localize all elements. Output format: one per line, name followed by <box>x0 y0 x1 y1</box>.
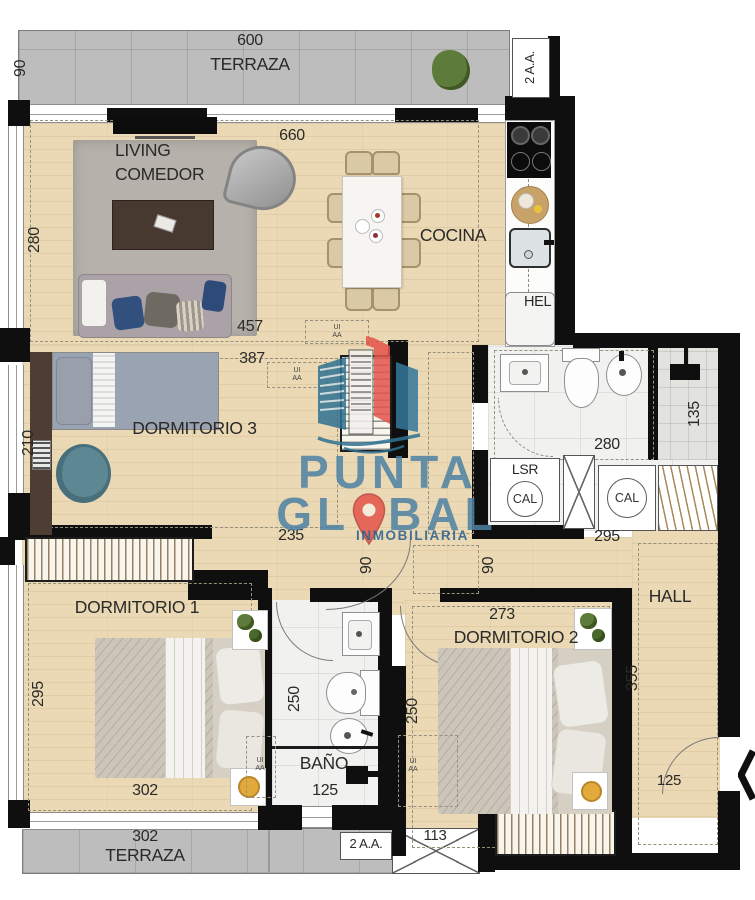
louver-closet <box>658 465 718 531</box>
suite-shower-depth: 135 <box>686 390 704 438</box>
duct-aa: AA <box>292 375 301 382</box>
corridor-dashed-box <box>413 545 479 594</box>
buildings-logo-icon <box>316 336 422 456</box>
dorm3-width: 387 <box>228 350 276 368</box>
duct-ui: UI <box>257 757 264 764</box>
hall-door-width: 125 <box>646 772 692 789</box>
burner-icon <box>532 152 551 171</box>
wall <box>8 800 30 828</box>
bano-width: 125 <box>278 782 372 800</box>
dining-chair <box>372 151 400 175</box>
heater-label: CAL <box>513 492 537 506</box>
sofa <box>78 274 232 338</box>
tv-stand <box>135 136 195 139</box>
dining-table <box>342 176 402 288</box>
remote-icon <box>153 214 176 233</box>
dorm3-chair <box>56 444 111 503</box>
shower-divider <box>272 746 378 749</box>
living-left-window <box>8 125 24 328</box>
plate-icon <box>355 219 370 234</box>
hall-label: HALL <box>640 586 700 607</box>
hall-top-width: 295 <box>580 528 634 546</box>
suite-bidet <box>606 354 642 396</box>
dorm1-label: DORMITORIO 1 <box>62 597 212 618</box>
terrace-bottom <box>22 828 394 874</box>
dorm2-wardrobe <box>495 810 616 856</box>
hall-depth: 355 <box>624 652 642 704</box>
plate-icon <box>369 229 383 243</box>
sheet-fold <box>93 353 115 427</box>
void-width: 113 <box>402 827 468 844</box>
pillow <box>214 644 266 706</box>
bidet-spout-icon <box>619 351 624 361</box>
lemon-icon <box>534 205 542 213</box>
suite-bath-width: 280 <box>580 436 634 454</box>
wall <box>378 600 392 815</box>
bed-duvet <box>510 648 552 814</box>
bidet-drain-icon <box>344 732 351 739</box>
heater-closet: CAL <box>598 465 656 531</box>
ac-unit-top: 2 A.A. <box>512 38 550 98</box>
wall <box>258 805 302 830</box>
bano-depth: 250 <box>286 672 304 726</box>
terrace-bottom-divider <box>268 828 270 872</box>
wall <box>8 100 30 126</box>
bidet-drain-icon <box>619 369 626 376</box>
wall <box>718 533 740 737</box>
burner-icon <box>531 126 550 145</box>
terrace-bottom-width: 302 <box>115 828 175 846</box>
dining-chair <box>399 193 421 223</box>
bed-duvet <box>165 638 205 778</box>
floor-plan: LSR CAL CAL HEL <box>0 0 755 900</box>
suite-sink <box>500 354 549 392</box>
terrace-top-depth: 90 <box>12 46 30 90</box>
drain-icon <box>524 250 533 259</box>
dorm2-width: 273 <box>475 606 529 624</box>
plate-icon <box>371 209 385 223</box>
duct-ui: UI <box>294 367 301 374</box>
living-label-line2: COMEDOR <box>115 164 245 185</box>
dorm1-wardrobe <box>25 537 194 582</box>
wall <box>718 791 740 870</box>
living-width: 660 <box>262 127 322 145</box>
corridor-door1-width: 90 <box>358 548 376 582</box>
duct-box: UIAA <box>398 735 458 807</box>
wall <box>0 537 15 565</box>
flush-icon <box>351 689 357 695</box>
living-depth: 280 <box>26 214 44 266</box>
dorm2-label: DORMITORIO 2 <box>436 627 596 648</box>
cooktop-icon <box>507 122 551 178</box>
faucet-icon <box>544 240 554 245</box>
duct-label: UIAA <box>286 367 308 382</box>
suite-toilet <box>564 358 599 408</box>
burner-icon <box>511 152 530 171</box>
drain-icon <box>522 369 528 375</box>
bano-bottom-window <box>300 806 332 828</box>
wall <box>0 328 30 362</box>
pillow <box>56 357 92 425</box>
pillow <box>111 295 145 331</box>
duct-aa: AA <box>255 765 264 772</box>
burner-icon <box>511 126 530 145</box>
pillow <box>176 300 205 332</box>
coffee-table <box>112 200 214 250</box>
duct-ui: UI <box>410 758 417 765</box>
duct-ui: UI <box>334 324 341 331</box>
ac-unit-top-label: 2 A.A. <box>522 43 537 93</box>
brand-line2-left: GL <box>276 492 350 536</box>
living-dim-bottom: 457 <box>224 318 276 336</box>
terrace-plant-icon <box>432 50 470 90</box>
toilet-bowl <box>326 672 366 714</box>
pillow <box>143 291 180 328</box>
bano-label: BAÑO <box>276 753 372 774</box>
pillow <box>201 280 227 313</box>
brand-subtitle: INMOBILIARIA <box>356 528 486 543</box>
duct-label: UIAA <box>403 758 423 773</box>
duct-label: UIAA <box>250 757 270 772</box>
terrace-bottom-label: TERRAZA <box>95 845 195 866</box>
tv-icon <box>113 117 217 134</box>
dorm3-depth: 210 <box>20 418 38 468</box>
kitchen-sink-icon <box>509 228 551 268</box>
wall <box>718 333 740 533</box>
dining-chair <box>345 151 373 175</box>
nightstand <box>232 610 268 650</box>
plant-icon <box>237 614 254 630</box>
wall <box>553 110 575 345</box>
laundry-label: LSR <box>491 461 559 477</box>
fridge: HEL <box>505 292 555 346</box>
dorm1-depth: 295 <box>30 668 48 720</box>
duct-box: UIAA <box>246 736 276 798</box>
dorm1-bed <box>95 638 265 778</box>
brand-logo <box>316 336 422 456</box>
heater-circle: CAL <box>507 481 543 517</box>
terrace-top-width: 600 <box>210 32 290 50</box>
wall <box>332 805 392 830</box>
dorm1-left-window <box>8 565 24 800</box>
cutting-board-icon <box>511 186 549 224</box>
dining-chair <box>372 287 400 311</box>
entrance-chevron-icon <box>738 748 755 802</box>
cocina-label: COCINA <box>408 225 498 246</box>
corridor-door2-width: 90 <box>480 548 498 582</box>
dining-chair <box>345 287 373 311</box>
bathroom-sink <box>342 612 380 656</box>
suite-shower-head-icon <box>670 364 700 380</box>
terrace-top-label: TERRAZA <box>175 54 325 75</box>
fridge-label: HEL <box>524 294 551 310</box>
food-icon <box>373 233 378 238</box>
dorm2-depth: 250 <box>404 684 422 738</box>
pillow <box>552 659 610 729</box>
ac-unit-bottom: 2 A.A. <box>340 832 392 860</box>
drain-icon <box>356 631 362 637</box>
heater2-circle: CAL <box>607 478 647 518</box>
lamp-icon <box>581 781 602 802</box>
heater2-label: CAL <box>615 491 639 505</box>
wall <box>472 345 488 403</box>
bowl-icon <box>518 193 534 209</box>
dorm3-label: DORMITORIO 3 <box>112 418 277 439</box>
nightstand <box>572 772 608 810</box>
duct-shaft <box>563 455 595 529</box>
ac-unit-bottom-label: 2 A.A. <box>341 836 391 851</box>
throw-blanket <box>82 280 106 326</box>
dorm1-width: 302 <box>118 782 172 800</box>
living-label-line1: LIVING <box>115 140 235 161</box>
duct-aa: AA <box>408 766 417 773</box>
food-icon <box>375 213 380 218</box>
plant-icon <box>249 629 262 642</box>
